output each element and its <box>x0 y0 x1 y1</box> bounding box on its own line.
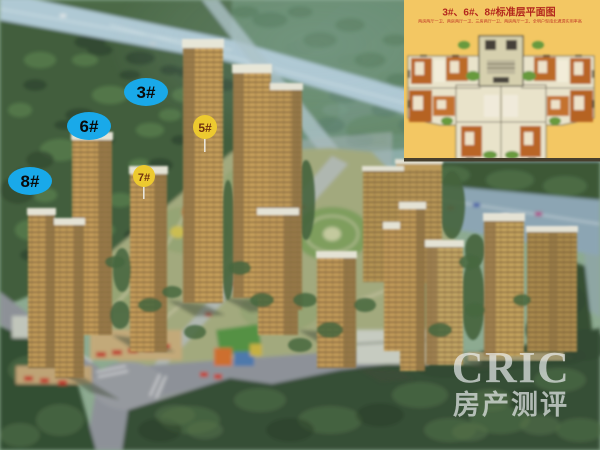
svg-text:6#: 6# <box>80 117 99 136</box>
svg-text:3#、6#、8#标准层平面图: 3#、6#、8#标准层平面图 <box>442 6 555 19</box>
svg-text:7#: 7# <box>138 172 150 184</box>
svg-text:8#: 8# <box>21 172 40 191</box>
svg-text:CRIC: CRIC <box>452 343 570 392</box>
svg-text:房产测评: 房产测评 <box>453 390 569 420</box>
svg-text:3#: 3# <box>137 83 156 102</box>
svg-text:两房两厅一卫、两房两厅一卫、三房两厅一卫、两房两厅一卫、全明: 两房两厅一卫、两房两厅一卫、三房两厅一卫、两房两厅一卫、全明户型南北通透实用率高 <box>418 18 582 24</box>
svg-text:5#: 5# <box>198 121 212 135</box>
